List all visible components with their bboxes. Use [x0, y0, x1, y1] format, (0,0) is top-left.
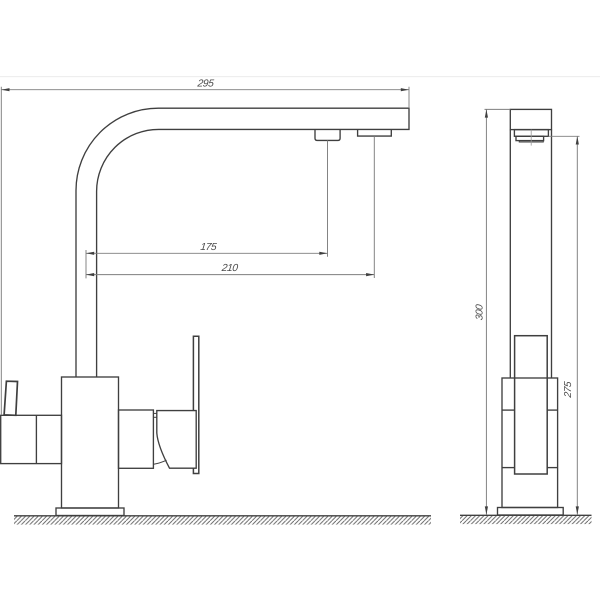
svg-text:275: 275	[563, 381, 574, 399]
svg-text:295: 295	[196, 78, 215, 89]
svg-text:175: 175	[200, 242, 218, 253]
svg-text:300: 300	[475, 303, 486, 320]
svg-text:210: 210	[220, 263, 239, 274]
